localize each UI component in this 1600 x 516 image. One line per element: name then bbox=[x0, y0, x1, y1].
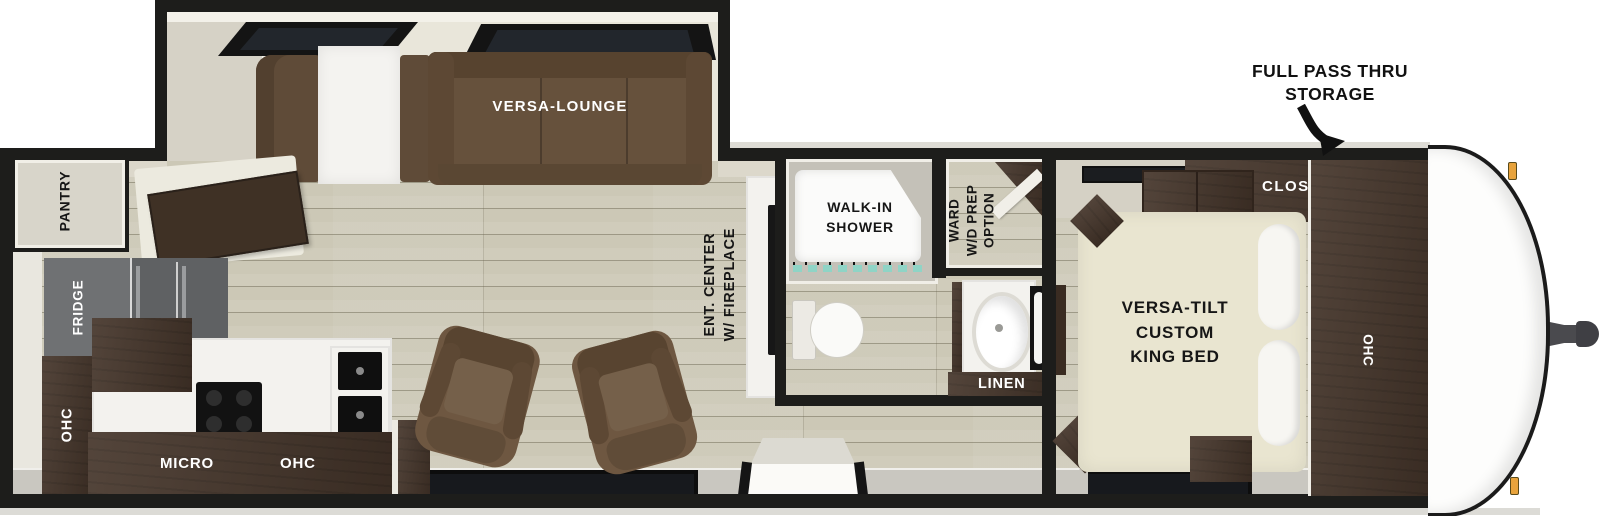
bed-label-wrap: VERSA-TILT CUSTOM KING BED bbox=[1090, 290, 1260, 376]
marker-light-bottom bbox=[1510, 477, 1519, 495]
slide-wall-top bbox=[155, 0, 730, 12]
slide-wall-right bbox=[718, 0, 730, 161]
hitch-coupler bbox=[1576, 321, 1599, 347]
kitchen-lower-counter bbox=[88, 432, 392, 494]
kitchen-wall-trim bbox=[13, 252, 42, 494]
bed-label-line3: KING BED bbox=[1122, 345, 1229, 370]
versa-lounge-sofa bbox=[428, 52, 712, 185]
wall-bottom bbox=[0, 494, 1440, 508]
dinette-table bbox=[318, 46, 400, 184]
shower-label-line2: SHOWER bbox=[826, 218, 894, 238]
kitchen-upper-cabinet bbox=[92, 318, 192, 392]
shower-curtain bbox=[793, 265, 925, 272]
kitchen-ohc-left-label: OHC bbox=[59, 408, 75, 443]
stove-burner-2 bbox=[236, 390, 252, 406]
kitchen-ohc-counter-label: OHC bbox=[280, 455, 316, 472]
sofa-cushion-seam-1 bbox=[540, 78, 542, 170]
bed-label-line1: VERSA-TILT bbox=[1122, 296, 1229, 321]
linen-label: LINEN bbox=[978, 376, 1026, 392]
storage-annotation: FULL PASS THRU STORAGE bbox=[1225, 60, 1435, 106]
front-cap bbox=[1428, 145, 1550, 516]
ward-label-wrap: WARD W/D PREP OPTION bbox=[942, 170, 1002, 270]
storage-annotation-line1: FULL PASS THRU bbox=[1225, 60, 1435, 83]
bedroom-nightstand bbox=[1190, 436, 1252, 482]
ent-center-label-line1: ENT. CENTER bbox=[701, 228, 721, 342]
sink-drain bbox=[995, 324, 1003, 332]
pantry-label: PANTRY bbox=[56, 171, 72, 232]
kitchen-ohc-left-label-wrap: OHC bbox=[47, 380, 87, 470]
shower-label-wrap: WALK-IN SHOWER bbox=[805, 196, 915, 240]
ward-label-line1: WARD bbox=[946, 184, 964, 256]
bedroom-left-wall bbox=[1042, 148, 1056, 508]
bedroom-wall-tv bbox=[1056, 285, 1066, 375]
slide-out-top-trim bbox=[167, 12, 718, 22]
sofa-cushion-seam-2 bbox=[626, 78, 628, 170]
drawer-knob-top bbox=[356, 367, 364, 375]
stove-burner-4 bbox=[236, 416, 252, 432]
fridge-handle-1 bbox=[136, 266, 140, 326]
pantry-label-wrap: PANTRY bbox=[44, 156, 84, 246]
ent-center-label-line2: W/ FIREPLACE bbox=[721, 228, 741, 342]
bed-pillow-bottom bbox=[1258, 340, 1300, 446]
bedroom-ohc-label: OHC bbox=[1361, 334, 1376, 366]
bathroom-box: WALK-IN SHOWER WARD W/D PREP OPTION bbox=[775, 148, 1055, 406]
sofa-back-cushion bbox=[428, 52, 712, 78]
floorplan-canvas: VERSA-LOUNGE PANTRY FRIDGE OHC MI bbox=[0, 0, 1600, 516]
storage-annotation-line2: STORAGE bbox=[1225, 83, 1435, 106]
versa-lounge-label: VERSA-LOUNGE bbox=[470, 98, 650, 115]
slide-window-right-glass bbox=[478, 30, 694, 54]
ground-shadow bbox=[0, 508, 1540, 515]
shower-label-line1: WALK-IN bbox=[826, 198, 894, 218]
bed-pillow-top bbox=[1258, 224, 1300, 330]
stove-burner-3 bbox=[206, 416, 222, 432]
toilet-bowl bbox=[810, 302, 864, 358]
storage-arrow-icon bbox=[1295, 104, 1347, 156]
micro-label: MICRO bbox=[160, 455, 214, 472]
drawer-knob-bottom bbox=[356, 411, 364, 419]
bedroom-ohc-label-wrap: OHC bbox=[1348, 305, 1388, 395]
bed-label: VERSA-TILT CUSTOM KING BED bbox=[1122, 296, 1229, 370]
sofa-front-edge bbox=[438, 164, 702, 185]
ent-center-label-wrap: ENT. CENTER W/ FIREPLACE bbox=[695, 200, 747, 370]
fridge-handle-2 bbox=[182, 266, 186, 326]
kitchen-drawer-unit bbox=[330, 346, 390, 440]
bed-label-line2: CUSTOM bbox=[1122, 321, 1229, 346]
marker-light-top bbox=[1508, 162, 1517, 180]
slide-wall-left bbox=[155, 0, 167, 161]
ward-label-line3: OPTION bbox=[981, 184, 999, 256]
entry-door bbox=[744, 464, 862, 495]
dinette-bench-right bbox=[400, 55, 430, 182]
ward-label: WARD W/D PREP OPTION bbox=[946, 184, 999, 256]
entry-step bbox=[750, 438, 856, 466]
fridge-label: FRIDGE bbox=[71, 279, 86, 335]
ent-center-label: ENT. CENTER W/ FIREPLACE bbox=[701, 228, 740, 342]
stove-burner-1 bbox=[206, 390, 222, 406]
sink-basin bbox=[972, 292, 1032, 372]
shower-label: WALK-IN SHOWER bbox=[826, 198, 894, 237]
ward-label-line2: W/D PREP bbox=[963, 184, 981, 256]
